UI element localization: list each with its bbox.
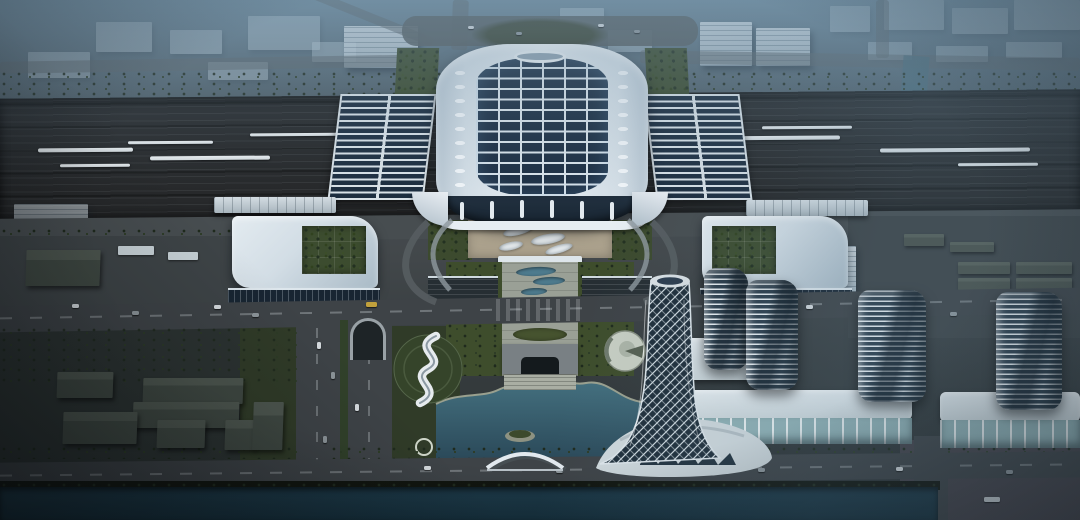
tower-cap-glass — [657, 277, 683, 285]
round-pavilion — [605, 331, 645, 371]
forecourt-ramp-right — [628, 220, 647, 290]
landmark-structures — [0, 0, 1080, 520]
aerial-render-scene — [0, 0, 1080, 520]
forecourt-ramp-left — [433, 220, 452, 290]
s-curve-pavilion — [394, 335, 462, 403]
twisted-landmark-tower — [596, 275, 772, 478]
arch-bridge — [487, 454, 565, 470]
tower-diagrid-body — [600, 281, 720, 464]
